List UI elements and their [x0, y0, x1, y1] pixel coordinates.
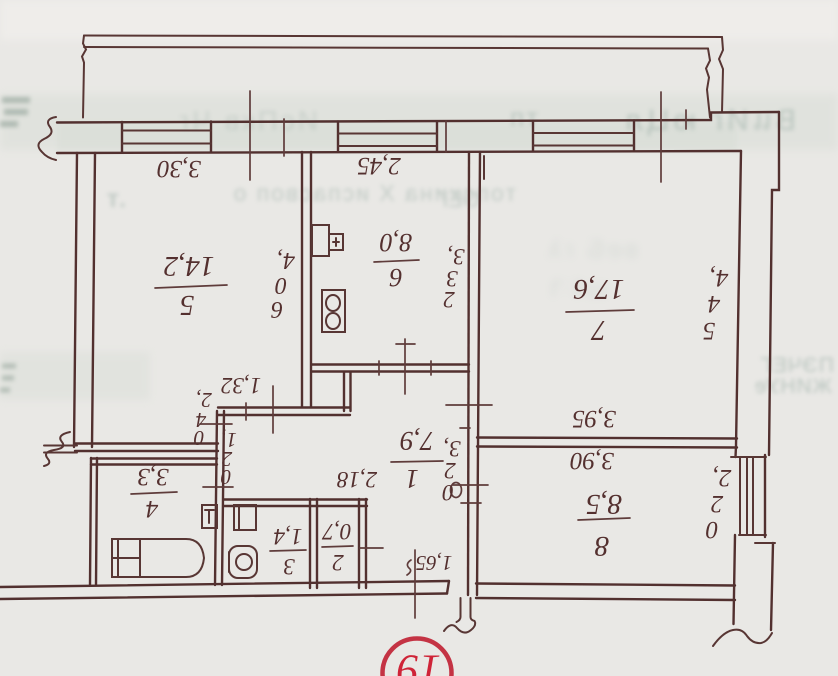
svg-text:3,95: 3,95	[572, 405, 617, 432]
svg-text:4,: 4,	[710, 264, 729, 291]
svg-text:1,65: 1,65	[416, 551, 453, 575]
svg-text:1,32: 1,32	[221, 373, 261, 398]
svg-text:3,: 3,	[443, 436, 461, 461]
svg-text:7: 7	[590, 314, 606, 346]
svg-text:2: 2	[332, 550, 344, 575]
svg-text:.т: .т	[107, 185, 126, 213]
svg-text:2: 2	[443, 287, 455, 312]
svg-text:3: 3	[283, 554, 296, 579]
svg-text:0: 0	[220, 465, 231, 489]
svg-text:8: 8	[594, 530, 609, 562]
svg-text:0: 0	[705, 516, 718, 543]
svg-text:6: 6	[390, 263, 403, 292]
svg-text:веБ гλ: веБ гλ	[545, 234, 638, 264]
svg-text:3,30: 3,30	[157, 155, 202, 182]
svg-text:1: 1	[405, 464, 419, 494]
svg-text:6: 6	[271, 296, 283, 322]
svg-text:2,: 2,	[713, 464, 732, 491]
svg-text:0,7: 0,7	[321, 519, 351, 544]
svg-text:4: 4	[146, 495, 159, 522]
svg-text:4,: 4,	[277, 247, 295, 273]
svg-text:2: 2	[444, 458, 456, 483]
svg-text:17,6: 17,6	[573, 273, 624, 305]
svg-text:0: 0	[275, 272, 287, 298]
svg-text:3,90: 3,90	[570, 447, 615, 474]
svg-text:14,2: 14,2	[164, 250, 215, 282]
svg-text:19: 19	[397, 646, 441, 676]
svg-text:0: 0	[193, 426, 204, 450]
svg-text:5: 5	[703, 317, 716, 344]
svg-text:3,: 3,	[447, 244, 465, 269]
svg-text:3,3: 3,3	[137, 463, 169, 490]
svg-text:5: 5	[180, 289, 195, 321]
svg-text:ОЕГ: ОЕГ	[436, 187, 480, 212]
svg-text:0: 0	[442, 480, 454, 505]
svg-text:8,5: 8,5	[586, 488, 622, 520]
svg-text:ЖИНУе: ЖИНУе	[754, 375, 832, 398]
svg-text:1,4: 1,4	[274, 524, 303, 549]
svg-text:2,45: 2,45	[357, 152, 401, 179]
svg-text:4: 4	[708, 290, 721, 317]
svg-text:8,0: 8,0	[380, 228, 413, 257]
svg-text:2,18: 2,18	[336, 467, 377, 492]
svg-text:7,9: 7,9	[400, 426, 434, 456]
svg-text:2: 2	[711, 490, 724, 517]
